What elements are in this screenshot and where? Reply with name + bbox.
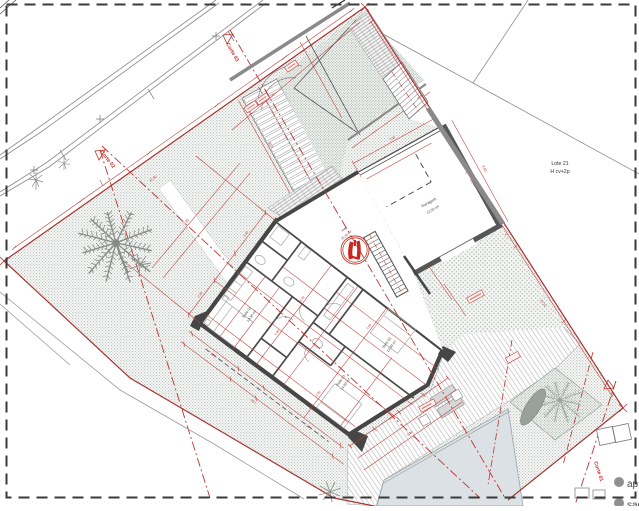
svg-text:ap: ap [627, 479, 639, 490]
svg-text:H cv+2p: H cv+2p [550, 169, 569, 175]
svg-text:sad: sad [627, 500, 639, 506]
svg-text:Lote 21: Lote 21 [551, 161, 568, 167]
